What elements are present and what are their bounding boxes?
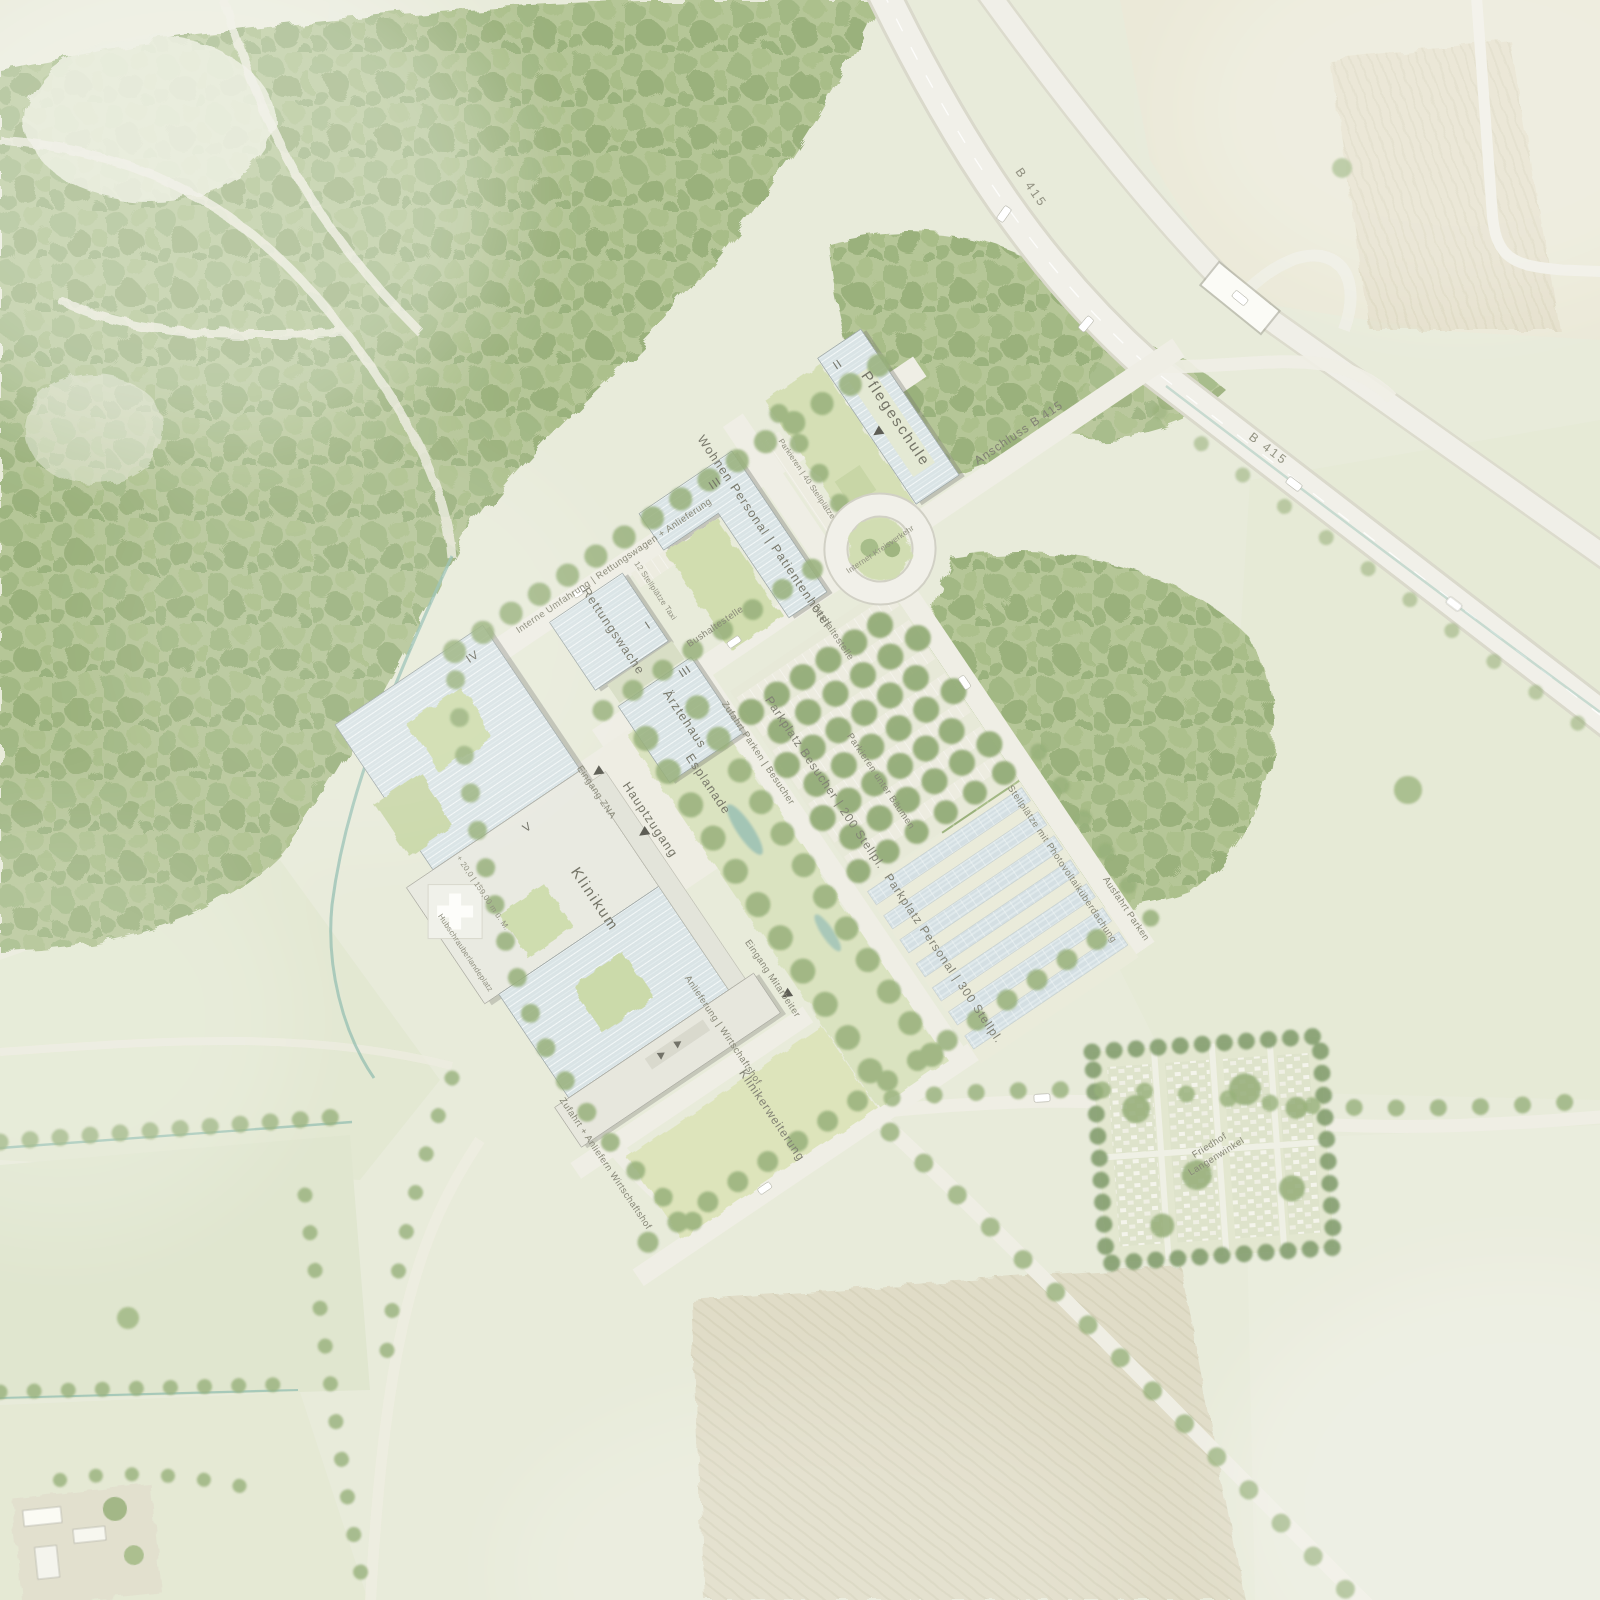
site-plan: Pflegeschule II Wohnen Personal | Patien… <box>0 0 1600 1600</box>
paper-wash <box>0 0 1600 1600</box>
site-plan-canvas: Pflegeschule II Wohnen Personal | Patien… <box>0 0 1600 1600</box>
